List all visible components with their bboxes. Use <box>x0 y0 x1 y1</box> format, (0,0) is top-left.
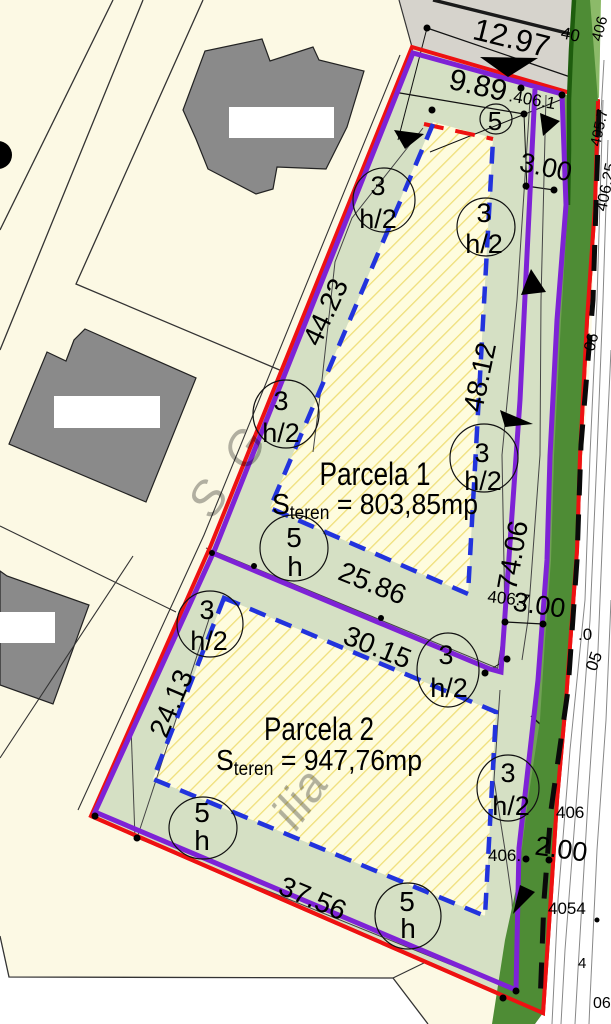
svg-text:h: h <box>400 913 416 944</box>
svg-text:h/2: h/2 <box>492 791 530 821</box>
svg-text:Parcela 1: Parcela 1 <box>320 456 431 492</box>
svg-text:406: 406 <box>556 803 584 822</box>
svg-text:3: 3 <box>199 595 214 625</box>
svg-text:5: 5 <box>194 797 210 828</box>
svg-text:h: h <box>194 825 210 856</box>
svg-text:5: 5 <box>286 522 302 553</box>
svg-text:06: 06 <box>593 995 611 1012</box>
svg-text:h/2: h/2 <box>430 673 468 703</box>
svg-text:406.: 406. <box>488 846 521 865</box>
svg-text:3: 3 <box>476 198 491 228</box>
svg-text:Parcela 2: Parcela 2 <box>264 711 374 747</box>
svg-text:5: 5 <box>488 106 502 136</box>
svg-text:.0: .0 <box>578 625 592 644</box>
svg-text:h/2: h/2 <box>359 204 397 234</box>
svg-text:h/2: h/2 <box>465 229 503 259</box>
svg-text:3: 3 <box>474 438 489 468</box>
svg-text:h: h <box>287 551 303 582</box>
svg-text:3: 3 <box>438 640 453 670</box>
svg-text:3: 3 <box>500 758 515 788</box>
svg-text:4054: 4054 <box>548 899 586 918</box>
svg-text:3: 3 <box>370 171 385 201</box>
svg-text:4: 4 <box>578 955 586 972</box>
svg-text:40: 40 <box>559 23 581 46</box>
svg-text:3: 3 <box>273 386 288 416</box>
svg-text:h/2: h/2 <box>190 626 228 656</box>
